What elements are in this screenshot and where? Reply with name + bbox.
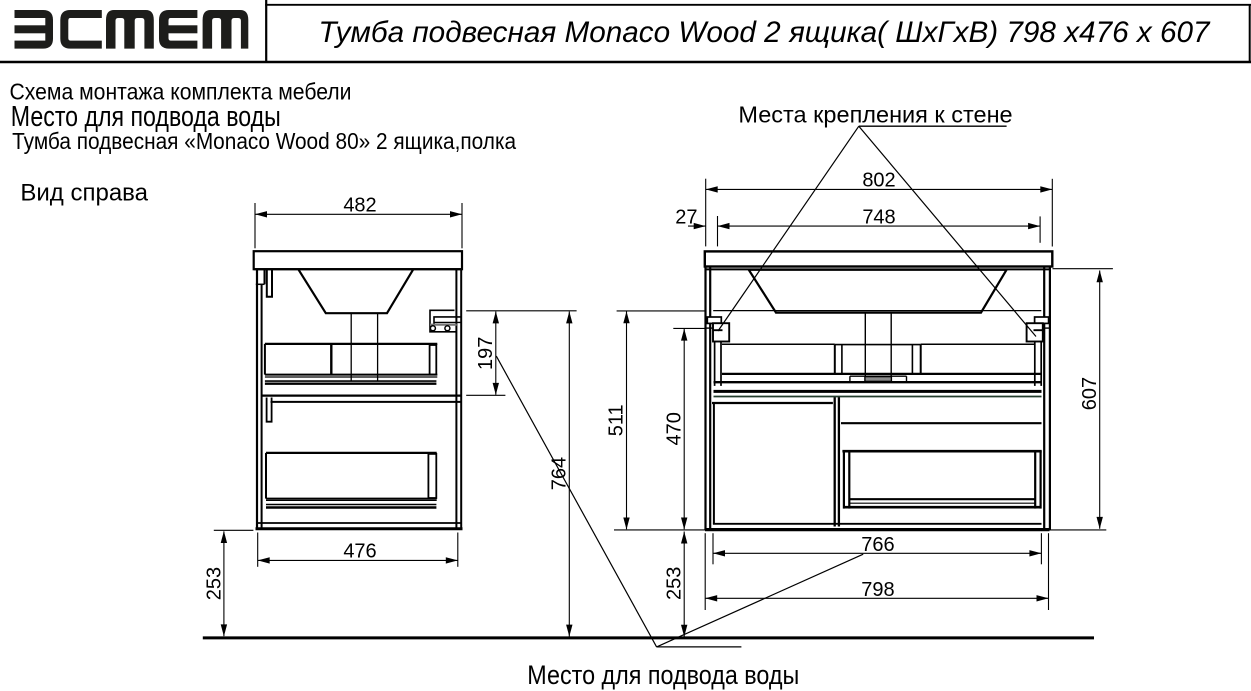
- svg-text:607: 607: [1079, 377, 1101, 410]
- svg-text:Места крепления к стене: Места крепления к стене: [738, 102, 1012, 128]
- svg-text:766: 766: [861, 534, 894, 556]
- svg-text:511: 511: [606, 404, 628, 436]
- svg-text:470: 470: [663, 412, 685, 445]
- svg-text:482: 482: [343, 195, 376, 217]
- svg-text:Место для подвода воды: Место для подвода воды: [527, 660, 799, 690]
- svg-text:802: 802: [862, 170, 895, 192]
- svg-text:253: 253: [663, 567, 685, 600]
- svg-text:476: 476: [343, 541, 376, 563]
- svg-text:Тумба подвесная «Monaco Wood 8: Тумба подвесная «Monaco Wood 80» 2 ящика…: [12, 128, 516, 154]
- svg-text:Тумба подвесная Monaco Wood 2: Тумба подвесная Monaco Wood 2 ящика( ШхГ…: [319, 16, 1211, 49]
- svg-text:748: 748: [862, 206, 895, 228]
- svg-text:798: 798: [861, 579, 894, 601]
- svg-text:Вид справа: Вид справа: [20, 180, 148, 207]
- svg-text:253: 253: [204, 567, 226, 600]
- svg-text:197: 197: [475, 337, 497, 370]
